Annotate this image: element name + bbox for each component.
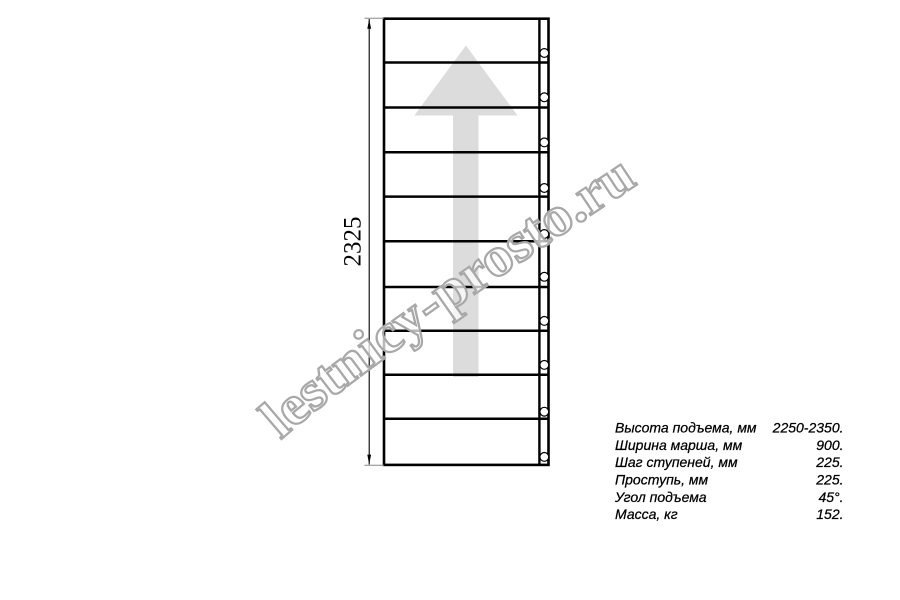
svg-text:900.: 900.: [816, 437, 843, 453]
svg-text:2325: 2325: [340, 217, 367, 267]
svg-text:2250-2350.: 2250-2350.: [772, 420, 844, 436]
svg-text:Угол подъема: Угол подъема: [614, 489, 707, 505]
svg-text:Ширина марша, мм: Ширина марша, мм: [615, 437, 743, 453]
svg-text:152.: 152.: [816, 506, 843, 522]
svg-text:Шаг ступеней, мм: Шаг ступеней, мм: [615, 454, 738, 470]
svg-text:225.: 225.: [815, 454, 843, 470]
svg-text:225.: 225.: [815, 472, 843, 488]
svg-text:Масса, кг: Масса, кг: [615, 506, 678, 522]
svg-text:45°.: 45°.: [818, 489, 843, 505]
svg-text:Высота подъема, мм: Высота подъема, мм: [615, 420, 757, 436]
svg-text:Проступь, мм: Проступь, мм: [615, 472, 709, 488]
